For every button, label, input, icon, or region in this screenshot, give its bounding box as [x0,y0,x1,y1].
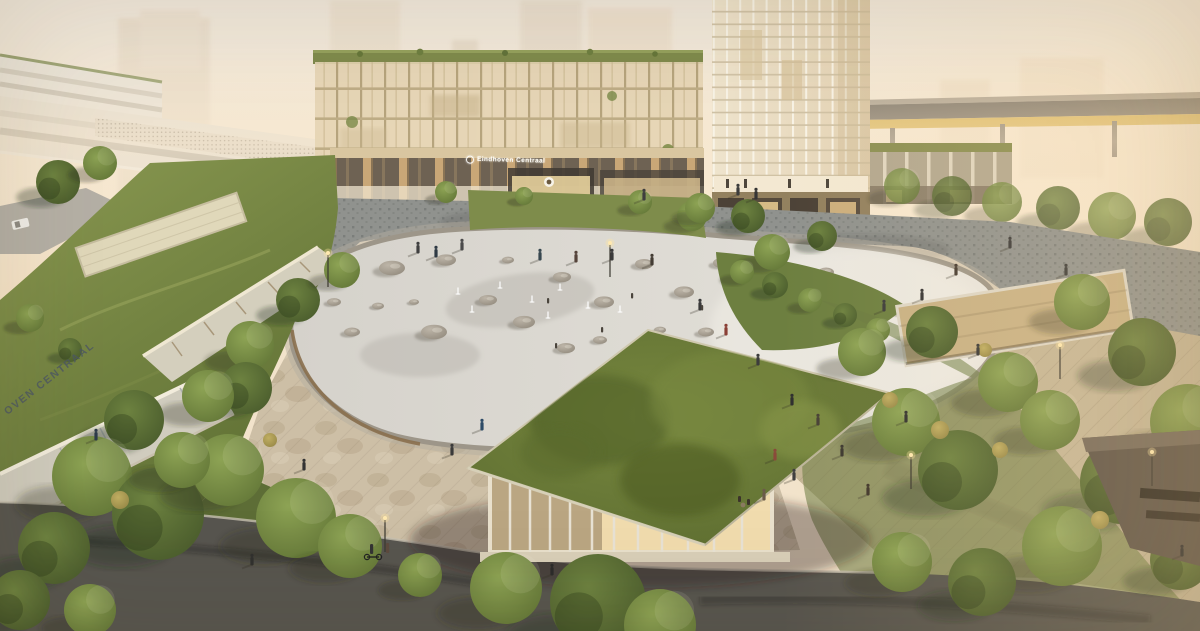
station-entrance-sign-text: Eindhoven Centraal [477,156,545,165]
rail-operator-logo-icon [466,155,474,163]
scene-canvas [0,0,1200,631]
architectural-rendering: OVEN CENTRAAL Eindhoven Centraal [0,0,1200,631]
evening-light-overlay [0,0,1200,631]
